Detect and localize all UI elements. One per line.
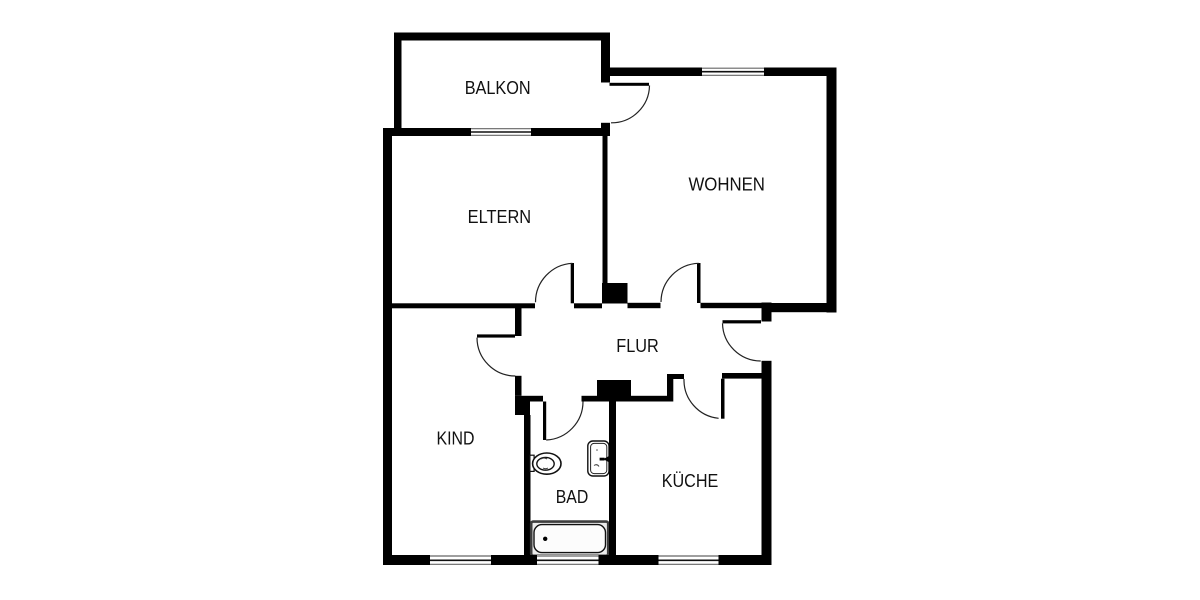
svg-text:WOHNEN: WOHNEN xyxy=(688,173,765,194)
svg-text:ELTERN: ELTERN xyxy=(468,206,532,227)
svg-text:BALKON: BALKON xyxy=(465,77,531,98)
svg-text:FLUR: FLUR xyxy=(616,335,659,356)
svg-text:KIND: KIND xyxy=(437,428,475,449)
svg-text:BAD: BAD xyxy=(556,486,589,507)
svg-text:KÜCHE: KÜCHE xyxy=(662,470,719,491)
